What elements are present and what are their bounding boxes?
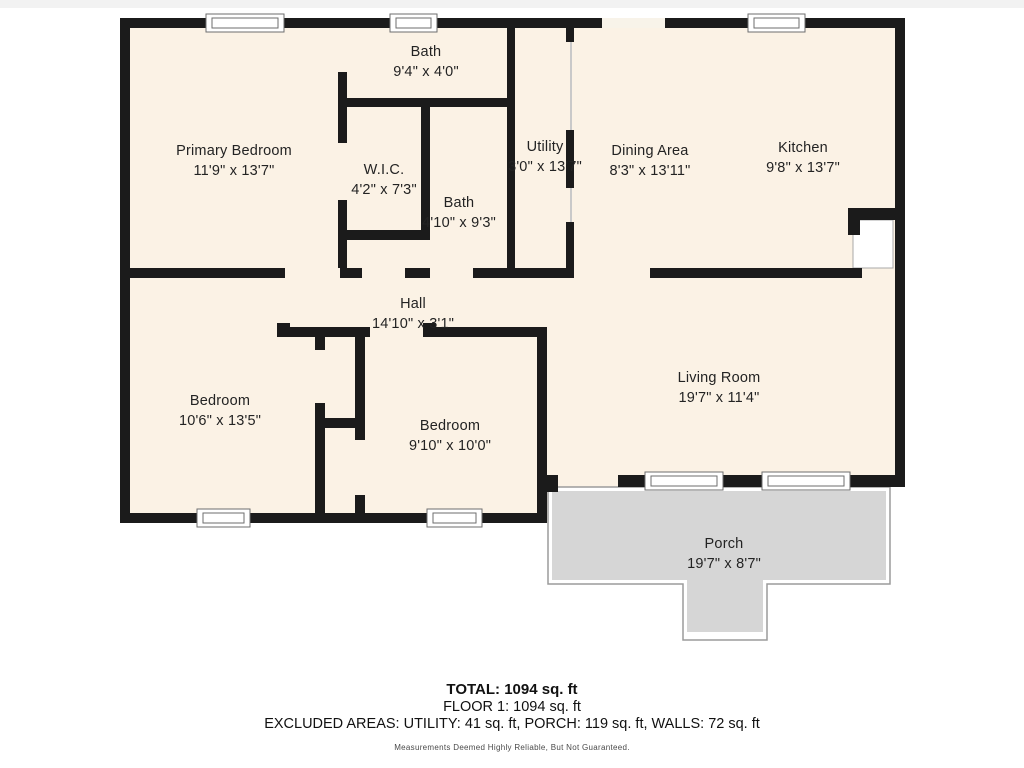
- win-outer: [762, 472, 850, 490]
- wall: [423, 327, 547, 337]
- wall: [473, 268, 573, 278]
- wall: [895, 18, 905, 487]
- floorplan-walls-layer: [0, 0, 1024, 660]
- wall: [618, 475, 645, 487]
- wall: [338, 72, 347, 143]
- wall: [650, 268, 862, 278]
- wall: [507, 28, 515, 268]
- window: [206, 14, 284, 32]
- wall: [850, 475, 905, 487]
- window: [427, 509, 482, 527]
- wall: [340, 268, 362, 278]
- wall: [338, 230, 422, 240]
- win-outer: [427, 509, 482, 527]
- wall: [120, 268, 285, 278]
- wall: [848, 208, 895, 220]
- wall: [723, 475, 762, 487]
- window: [748, 14, 805, 32]
- summary: TOTAL: 1094 sq. ft FLOOR 1: 1094 sq. ft …: [0, 681, 1024, 752]
- window: [390, 14, 437, 32]
- wall: [537, 337, 547, 523]
- wall: [315, 337, 325, 350]
- win-outer: [197, 509, 250, 527]
- wall: [120, 513, 547, 523]
- wall: [315, 418, 365, 428]
- wall: [277, 327, 370, 337]
- window: [762, 472, 850, 490]
- disclaimer-text: Measurements Deemed Highly Reliable, But…: [0, 743, 1024, 752]
- walls: [120, 18, 905, 523]
- floor-area-text: FLOOR 1: 1094 sq. ft: [0, 699, 1024, 717]
- thinline: [570, 42, 572, 130]
- wall: [566, 130, 574, 188]
- window: [197, 509, 250, 527]
- thinline: [570, 188, 572, 222]
- wall: [355, 495, 365, 513]
- wall: [542, 475, 558, 492]
- floor-plan-page: Primary Bedroom11'9" x 13'7" Bath9'4" x …: [0, 0, 1024, 768]
- wall: [120, 18, 602, 28]
- total-area-text: TOTAL: 1094 sq. ft: [0, 681, 1024, 699]
- wall: [566, 28, 574, 42]
- wall: [347, 98, 507, 107]
- window: [645, 472, 723, 490]
- wall: [848, 220, 860, 235]
- win-outer: [206, 14, 284, 32]
- wall: [421, 107, 430, 240]
- win-outer: [645, 472, 723, 490]
- wall: [405, 268, 430, 278]
- win-outer: [748, 14, 805, 32]
- win-outer: [390, 14, 437, 32]
- excluded-areas-text: EXCLUDED AREAS: UTILITY: 41 sq. ft, PORC…: [0, 716, 1024, 734]
